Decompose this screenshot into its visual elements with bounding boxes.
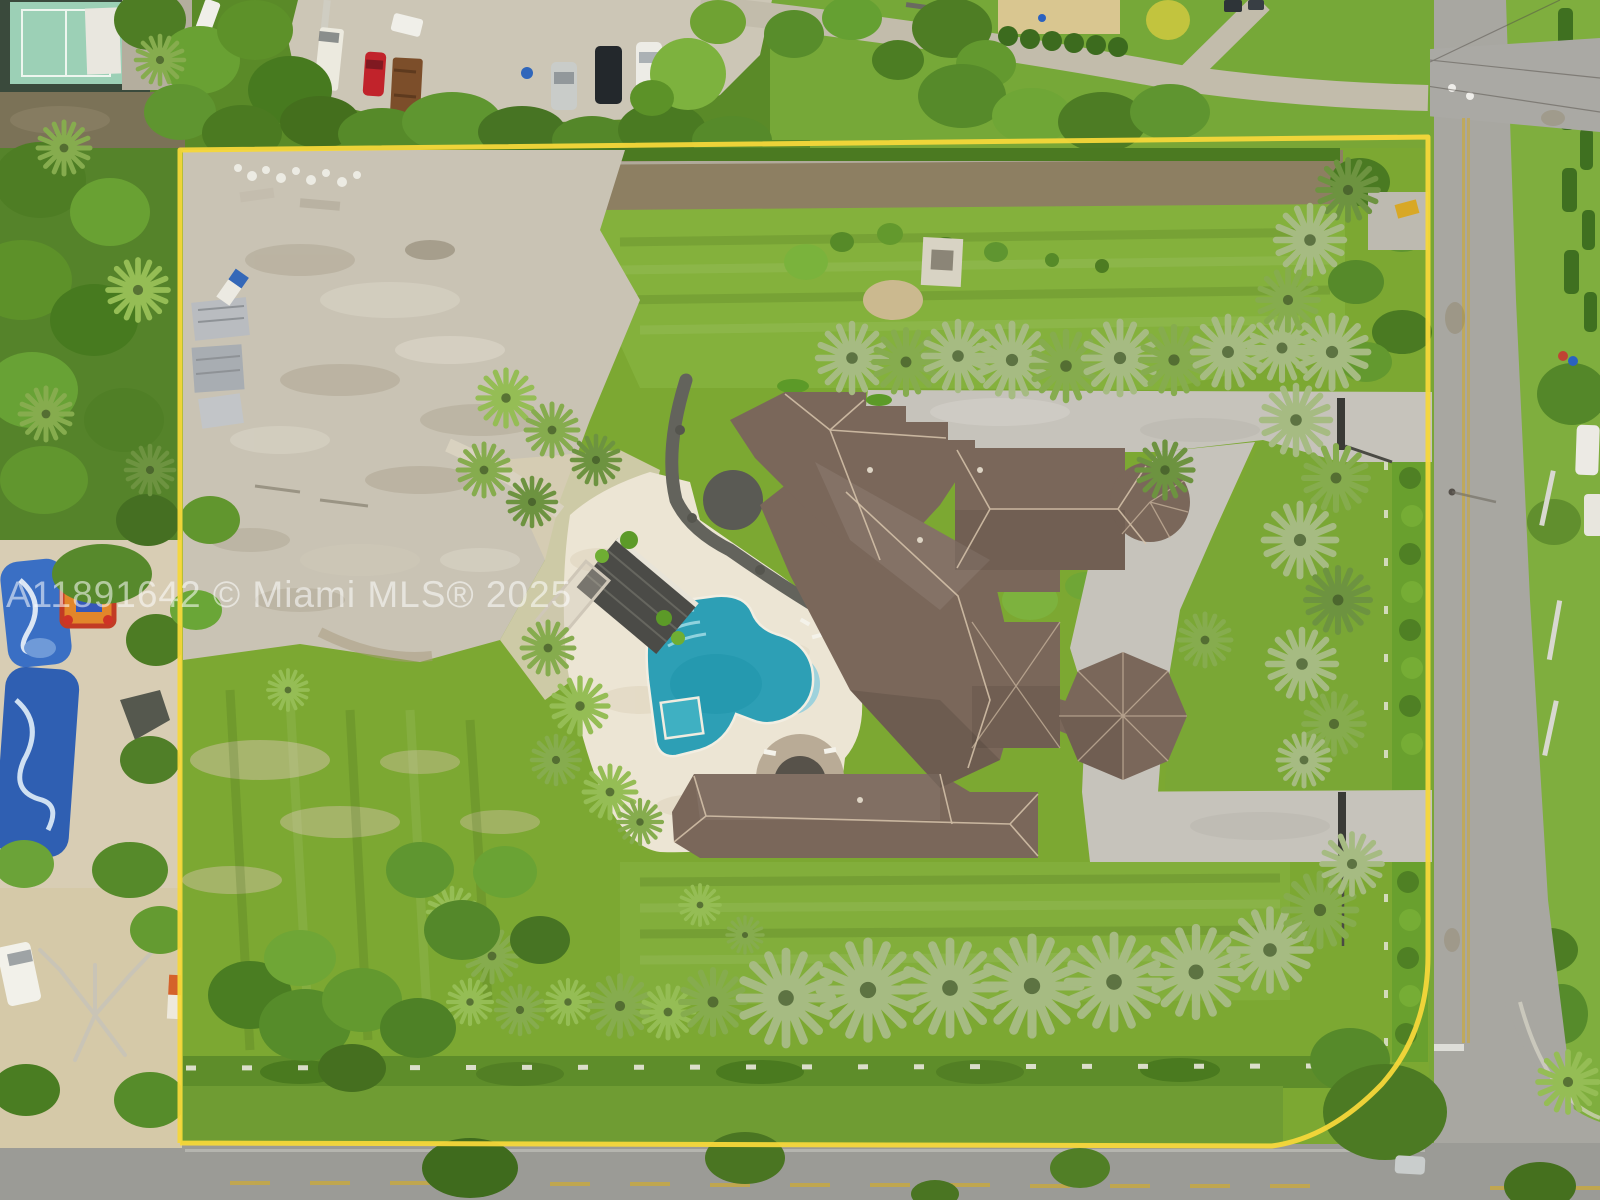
storage-sheds <box>191 297 250 429</box>
parked-white-suv <box>1575 425 1600 476</box>
concrete-pad-marker <box>921 237 963 287</box>
west-neighbor-strip <box>0 142 190 1148</box>
road-center-line <box>1462 118 1465 1043</box>
stop-bar <box>1434 1044 1464 1051</box>
sand-yard <box>998 0 1120 34</box>
overhang-tree <box>422 1138 518 1198</box>
east-hedge <box>1386 460 1428 1062</box>
car-on-road <box>1395 1155 1426 1175</box>
silver-sedan <box>551 62 577 110</box>
bay-balcony <box>703 470 763 530</box>
entry-gate-main <box>1337 398 1345 450</box>
watermark-text: A11891642 © Miami MLS® 2025 <box>6 574 572 616</box>
aerial-photo: A11891642 © Miami MLS® 2025 <box>0 0 1600 1200</box>
yellow-tree <box>1146 0 1190 40</box>
red-car <box>362 51 386 96</box>
pool-spa <box>661 698 704 739</box>
sand-mound <box>863 280 923 320</box>
blue-barrel <box>521 67 533 79</box>
dark-suv <box>595 46 622 104</box>
parked-white-car <box>1584 494 1600 536</box>
